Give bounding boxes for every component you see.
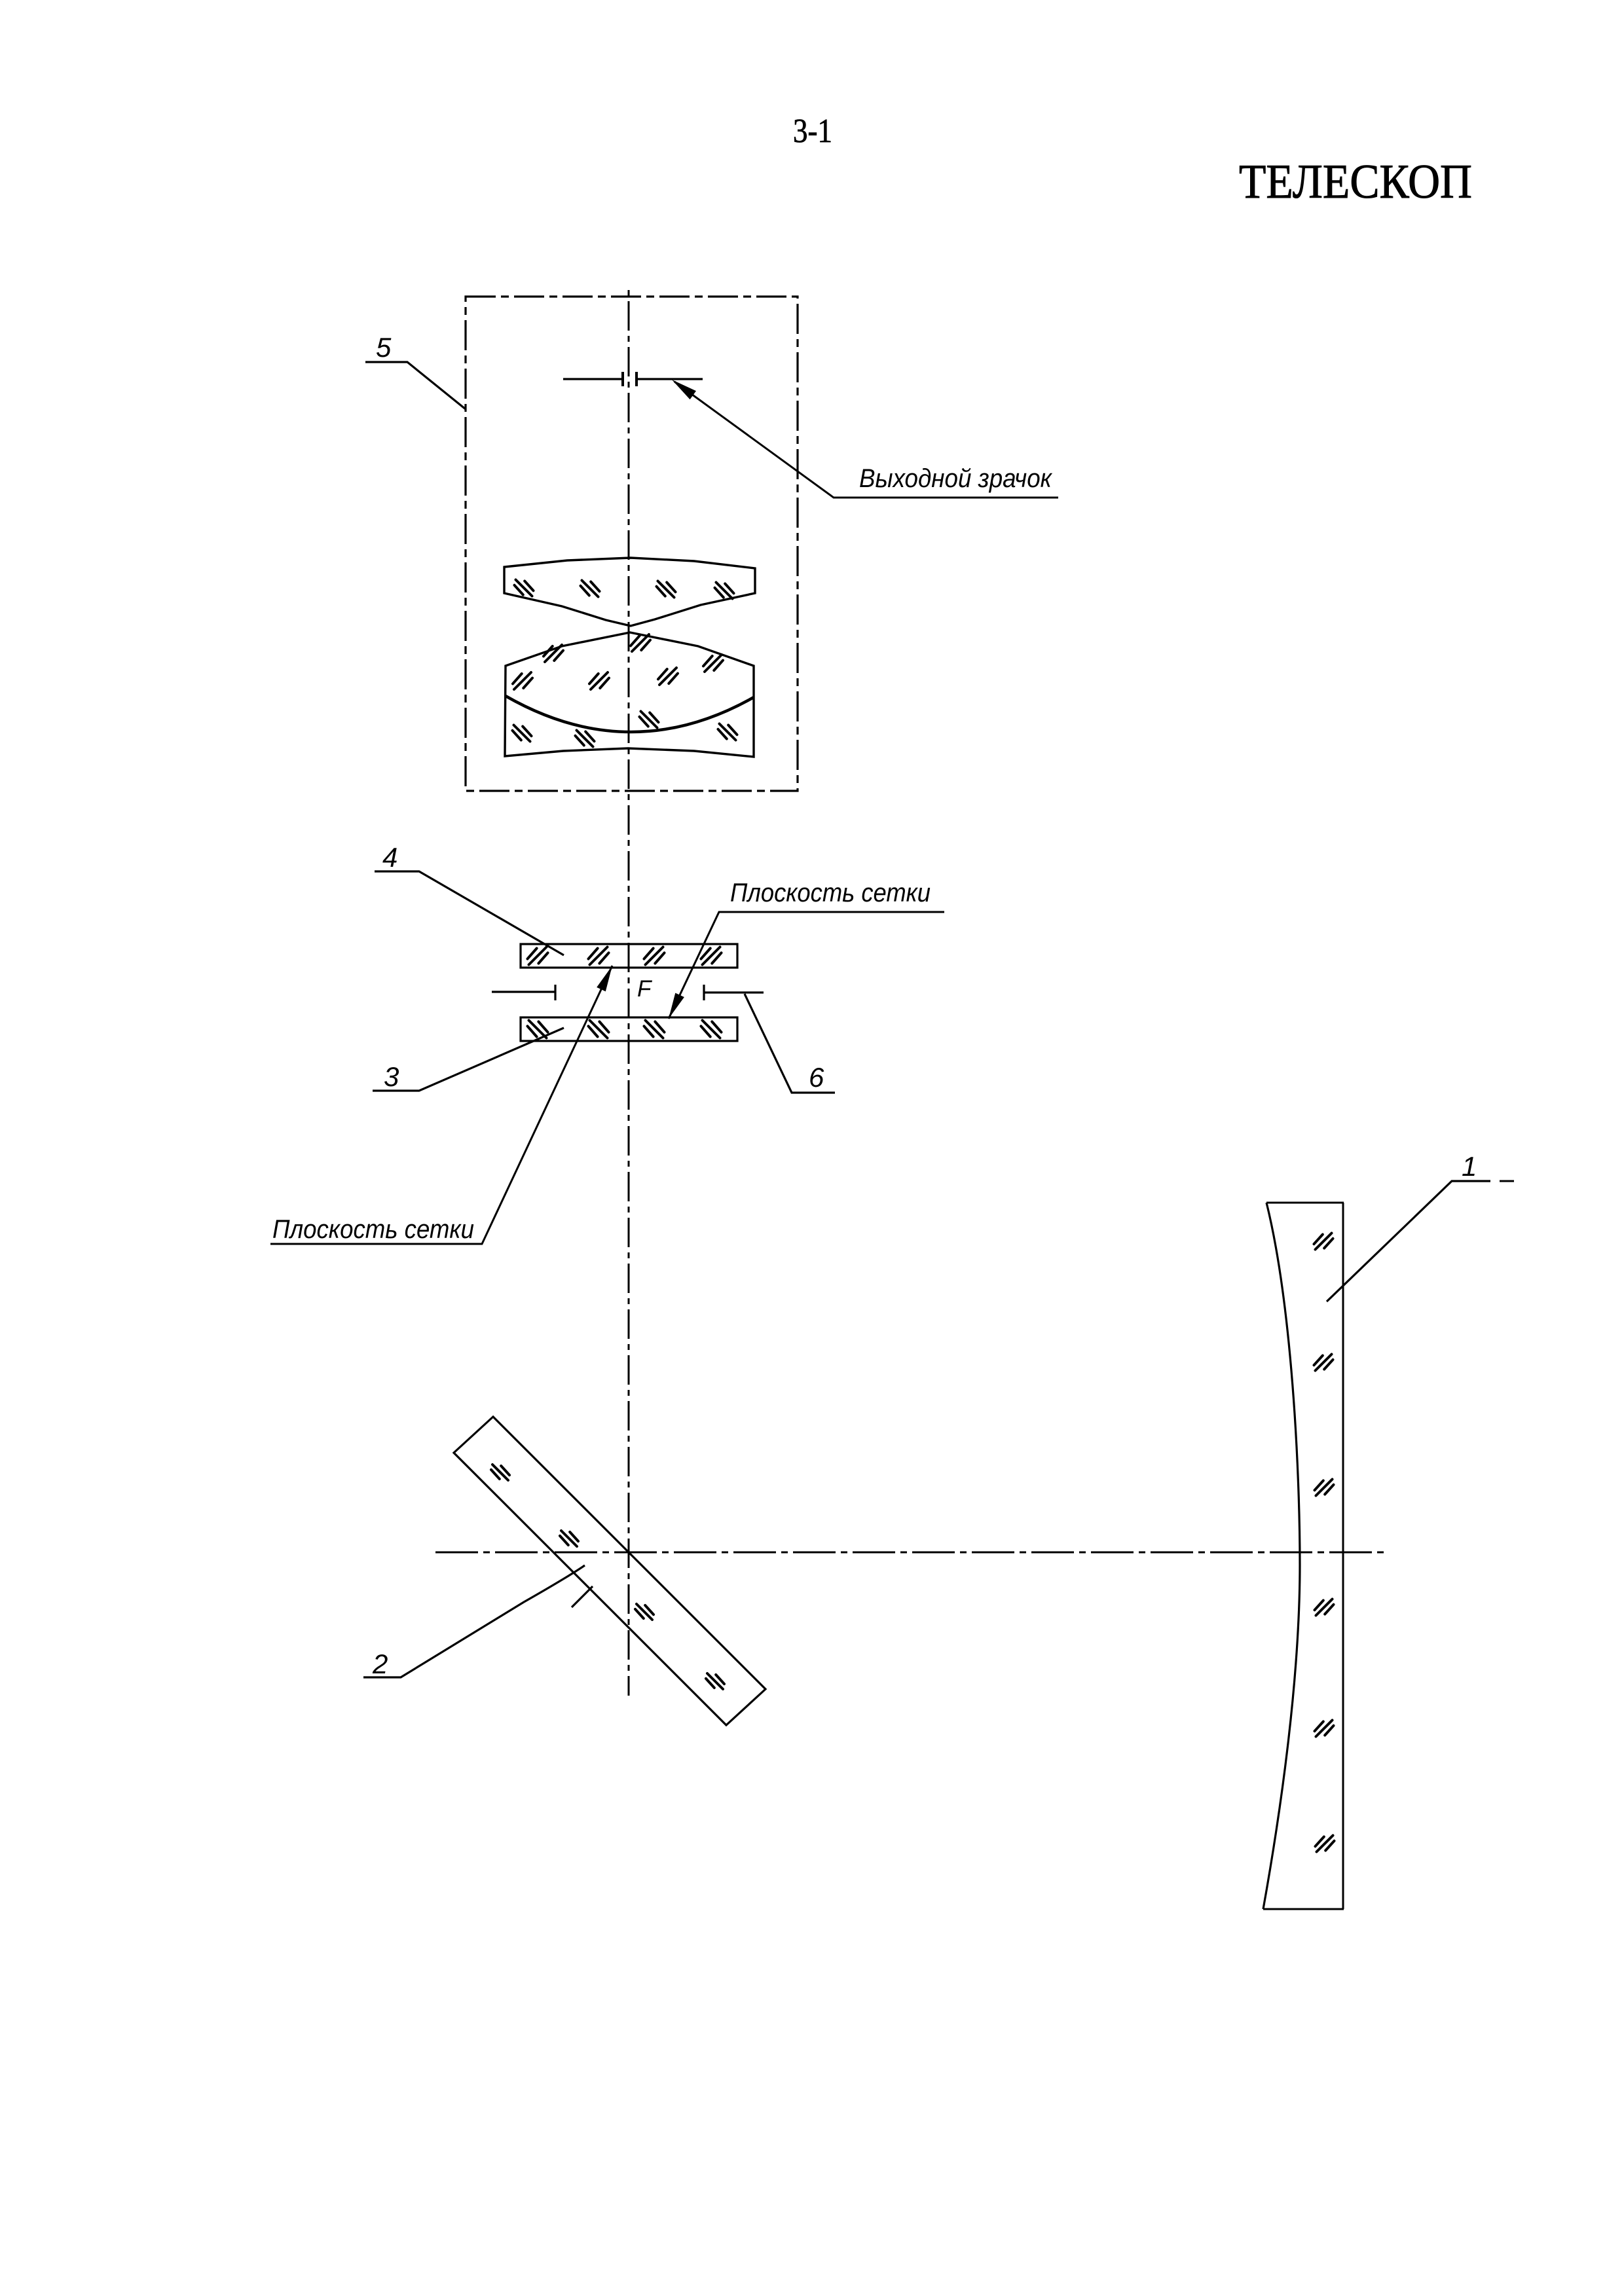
svg-text:Плоскость сетки: Плоскость сетки: [272, 1215, 474, 1244]
svg-text:4: 4: [382, 842, 397, 873]
svg-text:Выходной зрачок: Выходной зрачок: [859, 464, 1053, 493]
svg-text:6: 6: [809, 1062, 824, 1093]
svg-text:3-1: 3-1: [793, 113, 832, 150]
svg-text:2: 2: [372, 1649, 388, 1679]
svg-text:1: 1: [1462, 1151, 1477, 1182]
svg-text:ТЕЛЕСКОП: ТЕЛЕСКОП: [1239, 155, 1472, 209]
svg-text:3: 3: [384, 1061, 399, 1092]
svg-text:5: 5: [376, 332, 392, 363]
svg-text:Плоскость сетки: Плоскость сетки: [730, 879, 931, 907]
svg-text:F: F: [637, 976, 653, 1002]
